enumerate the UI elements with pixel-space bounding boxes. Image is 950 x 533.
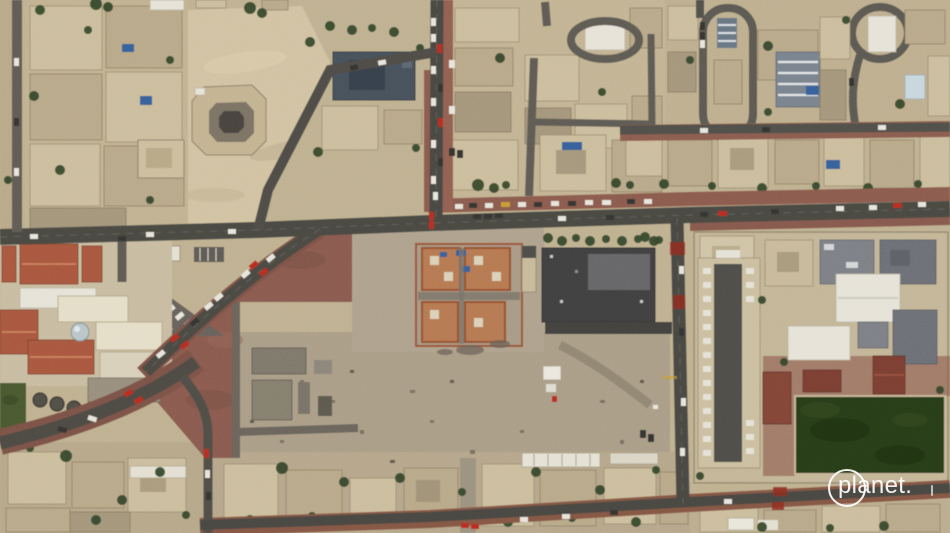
satellite-image: planet.	[0, 0, 950, 533]
planet-watermark: planet.	[828, 467, 938, 509]
satellite-canvas	[0, 0, 950, 533]
photo-grain	[0, 0, 950, 533]
tiny-ground-mark	[931, 485, 933, 496]
planet-logo-text: planet.	[838, 472, 912, 500]
